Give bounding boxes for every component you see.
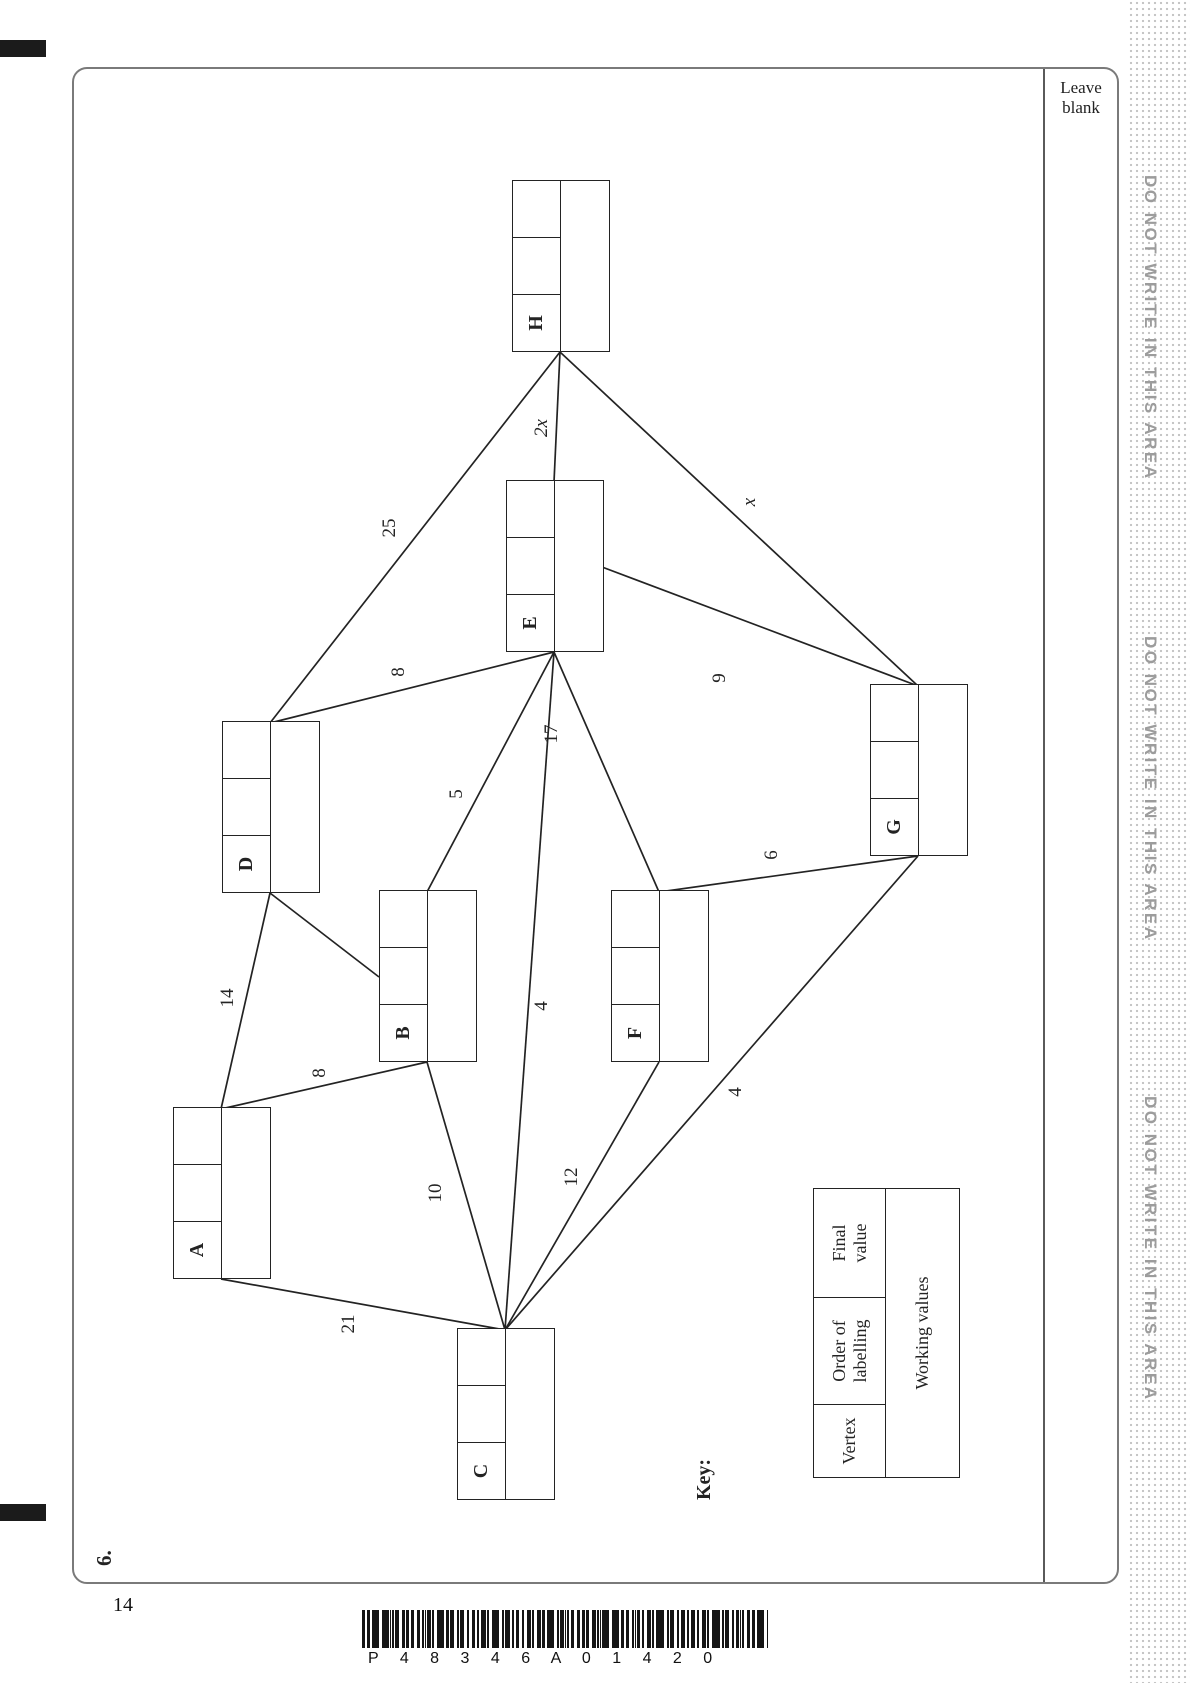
vertex-letter-H: H [513, 294, 561, 351]
vertex-box-B: B [379, 890, 477, 1062]
key-cell-order: Order of labelling [814, 1297, 886, 1404]
do-not-write-text: DO NOT WRITE IN THIS AREA [1140, 1096, 1160, 1402]
edge-weight-F-G: 6 [761, 850, 783, 860]
edge-weight-C-E: 4 [531, 1001, 553, 1011]
edge-weight-D-E: 8 [388, 667, 410, 677]
order-of-labelling-cell-H [513, 237, 561, 294]
question-number: 6. [92, 1550, 117, 1566]
rotated-question-content: 6. Key: Vertex Order of labelling Final … [72, 67, 1041, 1580]
final-value-cell-G [871, 685, 919, 741]
final-value-cell-C [458, 1329, 506, 1385]
edge-weight-A-B: 8 [309, 1068, 331, 1078]
vertex-box-D: D [222, 721, 320, 893]
edge-weight-B-C: 10 [425, 1184, 447, 1203]
vertex-box-F: F [611, 890, 709, 1062]
order-of-labelling-cell-G [871, 741, 919, 798]
edge-G-H [560, 352, 918, 686]
order-of-labelling-cell-B [380, 947, 428, 1004]
edge-weight-G-H: x [739, 498, 761, 506]
vertex-letter-A: A [174, 1221, 222, 1278]
edge-C-F [505, 1062, 659, 1330]
crop-mark-top [0, 40, 46, 57]
edge-A-C [221, 1279, 505, 1330]
vertex-box-H: H [512, 180, 610, 352]
key-cell-final-value: Final value [814, 1189, 886, 1297]
edge-weight-D-H: 25 [379, 519, 401, 538]
order-of-labelling-cell-C [458, 1385, 506, 1442]
edge-C-E [505, 652, 554, 1330]
vertex-letter-D: D [223, 835, 271, 892]
edge-weight-A-C: 21 [338, 1315, 360, 1334]
order-of-labelling-cell-A [174, 1164, 222, 1221]
exam-page: Leave blank DO NOT WRITE IN THIS AREA DO… [0, 0, 1190, 1683]
final-value-cell-D [223, 722, 271, 778]
barcode-text: P 4 8 3 4 6 A 0 1 4 2 0 [368, 1650, 768, 1668]
vertex-letter-G: G [871, 798, 919, 855]
final-value-cell-E [507, 481, 555, 537]
final-value-cell-A [174, 1108, 222, 1164]
edge-weight-C-G: 4 [725, 1087, 747, 1097]
leave-blank-column: Leave blank [1043, 69, 1117, 1582]
edge-weight-C-F: 12 [561, 1168, 583, 1187]
key-title: Key: [693, 1459, 716, 1500]
key-table: Vertex Order of labelling Final value Wo… [813, 1188, 960, 1478]
do-not-write-text: DO NOT WRITE IN THIS AREA [1140, 175, 1160, 481]
edge-E-G [602, 567, 918, 686]
barcode [362, 1610, 768, 1648]
edge-B-D [270, 893, 379, 977]
leave-blank-label: Leave blank [1045, 69, 1117, 118]
vertex-box-A: A [173, 1107, 271, 1279]
key-cell-vertex: Vertex [814, 1404, 886, 1477]
key-cell-working-values: Working values [886, 1189, 959, 1477]
vertex-letter-C: C [458, 1442, 506, 1499]
edge-D-E [270, 652, 554, 723]
final-value-cell-H [513, 181, 561, 237]
final-value-cell-F [612, 891, 660, 947]
page-number: 14 [113, 1594, 133, 1617]
edge-weight-B-E: 5 [446, 789, 468, 799]
order-of-labelling-cell-E [507, 537, 555, 594]
vertex-box-E: E [506, 480, 604, 652]
edge-weight-E-G: 9 [709, 673, 731, 683]
vertex-letter-E: E [507, 594, 555, 651]
vertex-box-G: G [870, 684, 968, 856]
vertex-letter-B: B [380, 1004, 428, 1061]
vertex-letter-F: F [612, 1004, 660, 1061]
edge-B-E [427, 652, 554, 892]
order-of-labelling-cell-D [223, 778, 271, 835]
edge-weight-E-F: 17 [541, 725, 563, 744]
order-of-labelling-cell-F [612, 947, 660, 1004]
edge-E-H [554, 352, 560, 482]
edge-E-F [554, 652, 659, 892]
edge-weight-A-D: 14 [217, 989, 239, 1008]
final-value-cell-B [380, 891, 428, 947]
crop-mark-bottom [0, 1504, 46, 1521]
edge-F-G [659, 856, 918, 892]
edge-weight-E-H: 2x [531, 419, 553, 437]
vertex-box-C: C [457, 1328, 555, 1500]
do-not-write-text: DO NOT WRITE IN THIS AREA [1140, 636, 1160, 942]
